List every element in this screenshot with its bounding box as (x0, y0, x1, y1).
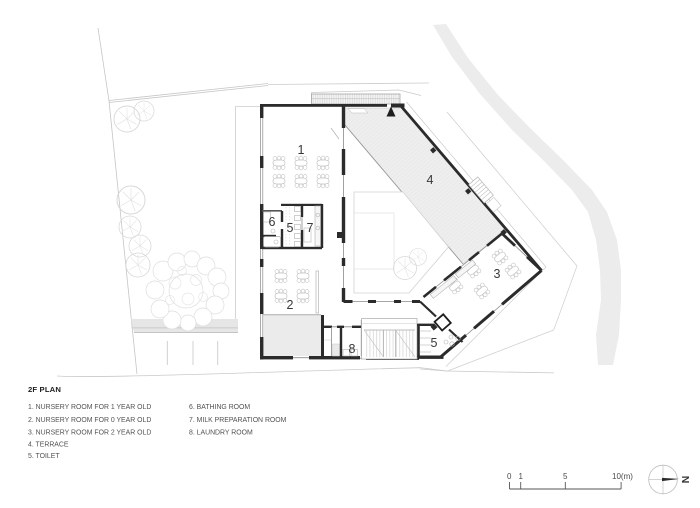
svg-text:2F PLAN: 2F PLAN (28, 385, 61, 394)
svg-text:7: 7 (307, 221, 314, 235)
svg-text:1: 1 (298, 143, 305, 157)
svg-text:4. TERRACE: 4. TERRACE (28, 441, 69, 448)
svg-text:5: 5 (431, 336, 438, 350)
svg-text:10(m): 10(m) (612, 472, 633, 481)
svg-text:4: 4 (427, 173, 434, 187)
svg-text:5. TOILET: 5. TOILET (28, 453, 60, 460)
svg-text:6. BATHING ROOM: 6. BATHING ROOM (189, 404, 250, 411)
svg-text:0: 0 (507, 472, 512, 481)
svg-text:5: 5 (287, 221, 294, 235)
svg-text:8. LAUNDRY ROOM: 8. LAUNDRY ROOM (189, 430, 253, 437)
svg-text:1: 1 (519, 472, 524, 481)
svg-text:2: 2 (287, 298, 294, 312)
svg-text:N: N (679, 476, 691, 484)
svg-text:6: 6 (269, 215, 276, 229)
svg-text:1. NURSERY ROOM FOR 1 YEAR OLD: 1. NURSERY ROOM FOR 1 YEAR OLD (28, 404, 151, 411)
svg-text:8: 8 (349, 342, 356, 356)
svg-text:3. NURSERY ROOM FOR 2 YEAR OLD: 3. NURSERY ROOM FOR 2 YEAR OLD (28, 430, 151, 437)
svg-text:7. MILK PREPARATION ROOM: 7. MILK PREPARATION ROOM (189, 417, 287, 424)
svg-text:2. NURSERY ROOM FOR 0 YEAR OLD: 2. NURSERY ROOM FOR 0 YEAR OLD (28, 417, 151, 424)
svg-text:5: 5 (563, 472, 568, 481)
svg-text:3: 3 (494, 267, 501, 281)
